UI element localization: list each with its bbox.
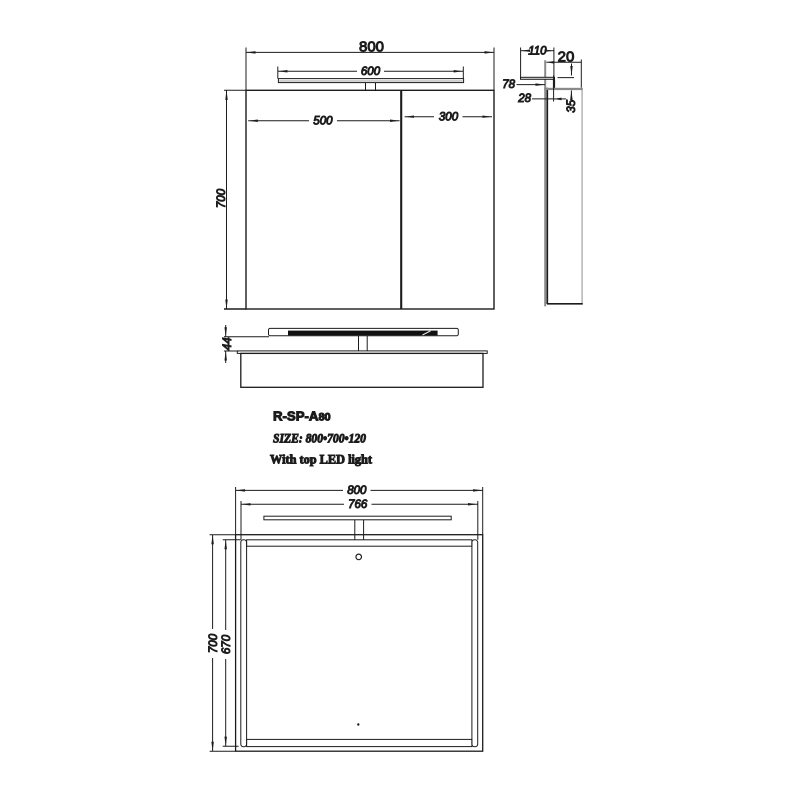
svg-text:35: 35: [566, 99, 578, 112]
svg-text:700: 700: [216, 188, 228, 208]
svg-text:20: 20: [558, 49, 575, 66]
svg-text:500: 500: [313, 115, 333, 127]
svg-text:800: 800: [359, 38, 384, 55]
svg-text:300: 300: [439, 111, 459, 123]
svg-text:670: 670: [221, 634, 233, 654]
svg-text:28: 28: [517, 93, 531, 105]
svg-text:600: 600: [361, 66, 381, 78]
svg-text:800: 800: [347, 485, 367, 497]
svg-text:78: 78: [502, 79, 515, 91]
svg-text:SIZE: 800•700•120: SIZE: 800•700•120: [273, 431, 366, 446]
svg-text:700: 700: [208, 633, 220, 653]
svg-text:766: 766: [348, 499, 368, 511]
svg-text:R-SP-A80: R-SP-A80: [273, 408, 331, 423]
svg-text:With top LED light: With top LED light: [270, 451, 373, 466]
svg-text:110: 110: [528, 45, 547, 57]
svg-text:44: 44: [222, 337, 234, 350]
